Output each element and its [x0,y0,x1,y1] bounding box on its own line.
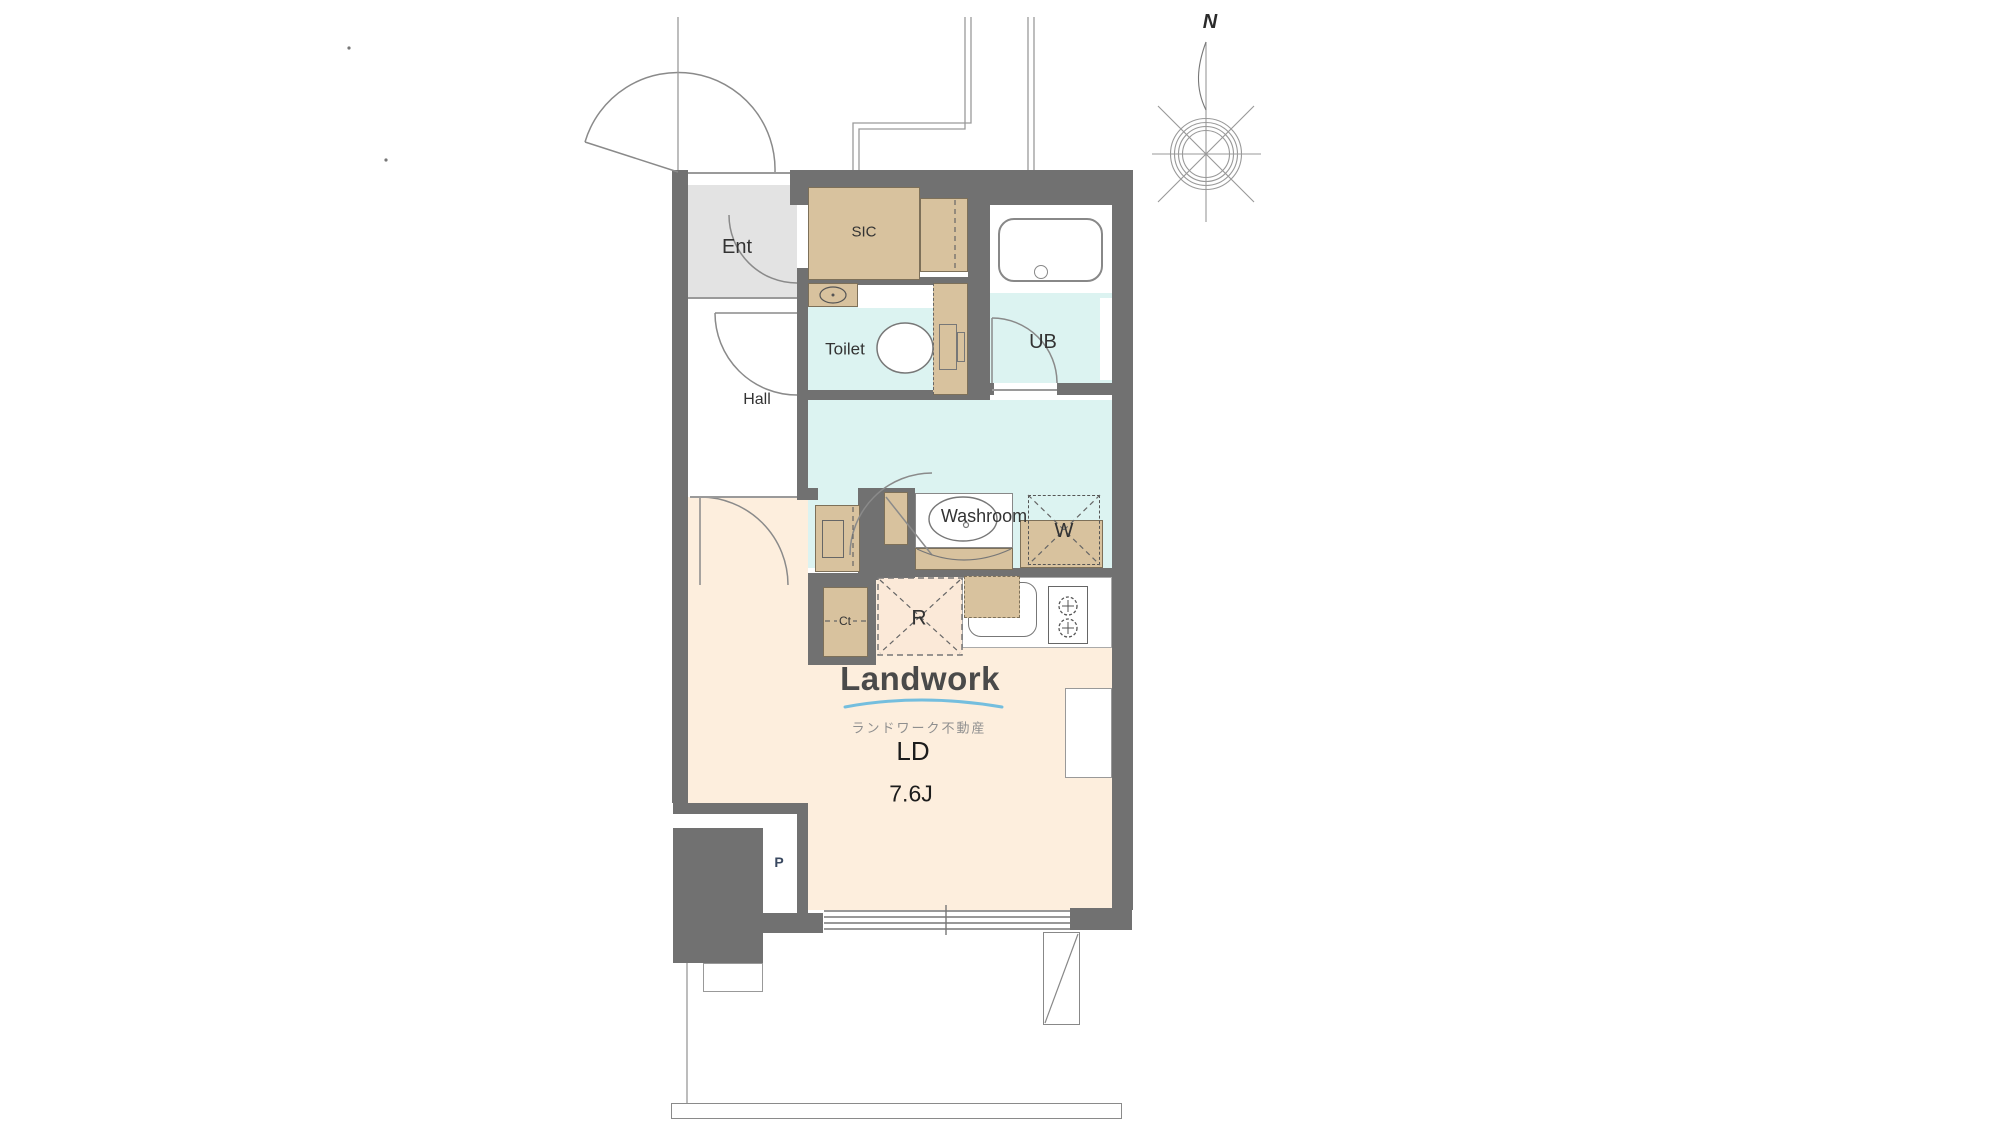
label-closet: Ct [837,615,853,627]
bathtub-drain [1034,265,1048,279]
ub-door-notch [1100,298,1112,380]
pipe-wall-right [797,813,808,913]
room-label-ld-size: 7.6J [889,783,932,806]
wall-ld-tick-left [675,489,688,500]
wall-sic-ub [968,185,990,400]
kitchen-sink-overlay [964,576,1020,618]
pipe-block [673,828,763,963]
wall-right [1112,170,1133,910]
bathtub [998,218,1103,282]
room-label-ld: LD [896,738,929,764]
ld-entry-cabinet-inner [822,520,844,558]
compass-icon [1152,42,1261,222]
balcony-edge [671,1103,1122,1119]
room-label-sic: SIC [851,225,876,240]
label-pipe-space: P [774,855,783,869]
wall-ub-bottom-right [1057,383,1121,395]
label-washer: W [1055,521,1074,541]
site-boundary-lines [678,17,1034,170]
balcony-partition [1043,932,1080,1025]
sic-side-cabinet [920,198,968,272]
toilet-hand-basin-counter [808,283,858,307]
compass-north-label: N [1203,12,1217,32]
wall-ld-tick-right [797,488,818,500]
sill-right [1070,908,1132,930]
toilet-tank-inner [939,324,957,370]
pipe-wall-top [673,803,808,814]
room-label-toilet: Toilet [825,341,865,358]
toilet-counter-band [858,282,935,308]
ld-floor-upper [688,497,802,575]
room-label-ent: Ent [722,237,752,257]
hall-door-arc [715,313,797,395]
entrance-door-arc [585,72,775,172]
logo-brand-text: Landwork [840,660,1000,698]
wall-ent-right [797,268,808,500]
stove [1048,586,1088,644]
logo-company-text: ランドワーク不動産 [851,718,986,737]
below-pipe-box [703,963,763,992]
entrance-door-leaf [585,142,678,172]
toilet-tank-inner-small [957,332,965,362]
stray-dots [347,46,387,161]
pipe-arm [762,913,823,933]
ld-floor-sliver [802,500,808,575]
room-label-washroom: Washroom [941,507,1027,525]
washroom-door-panel [884,492,908,545]
room-label-ub: UB [1029,332,1057,352]
floor-plan-page: Ent SIC Toilet UB Hall Washroom W Ct R P… [0,0,2016,1134]
label-refrigerator: R [911,608,926,629]
room-label-hall: Hall [743,392,771,408]
washbasin-base [915,548,1013,570]
wall-ub-bottom-left [988,383,994,395]
ld-right-niche [1065,688,1112,778]
wall-left [672,170,688,803]
